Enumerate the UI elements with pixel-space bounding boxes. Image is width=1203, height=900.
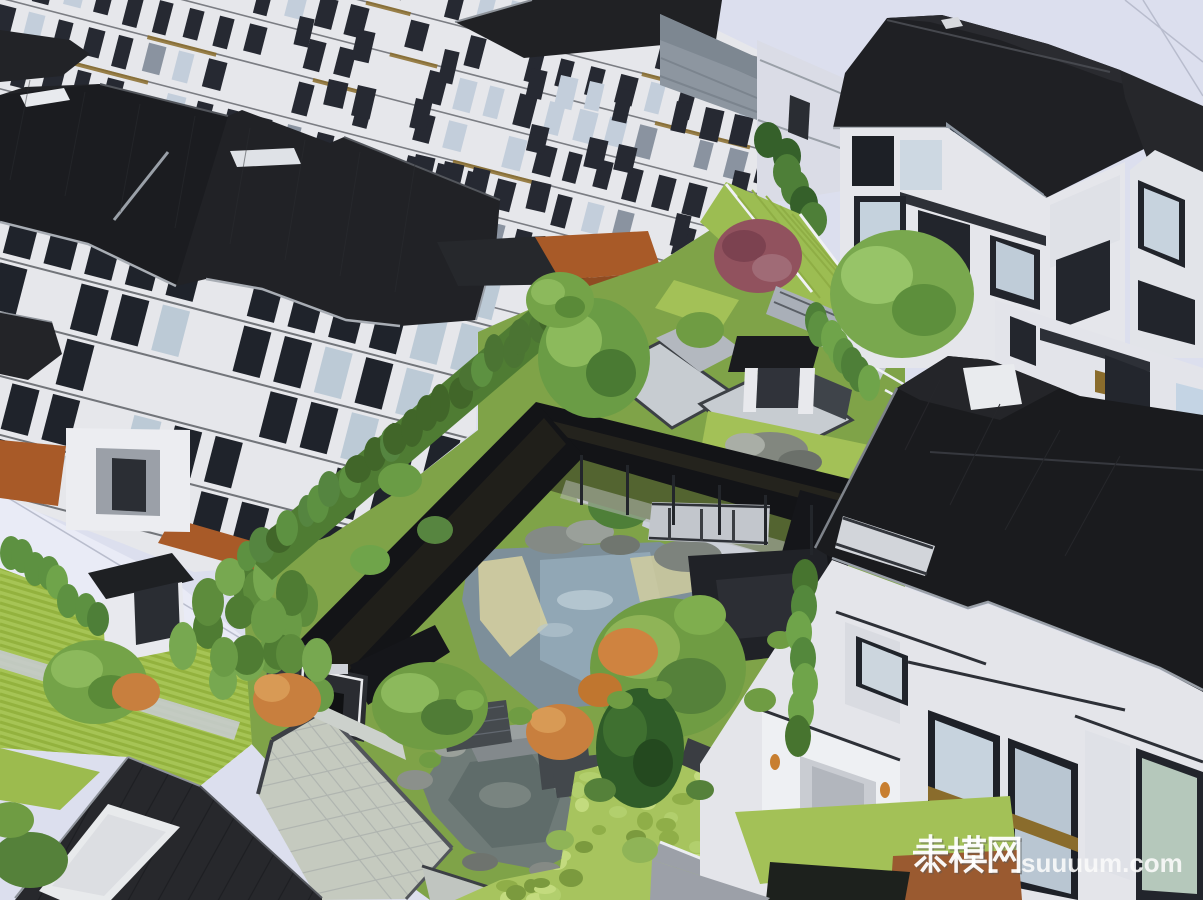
svg-text:suuuum.com: suuuum.com xyxy=(1021,848,1183,878)
